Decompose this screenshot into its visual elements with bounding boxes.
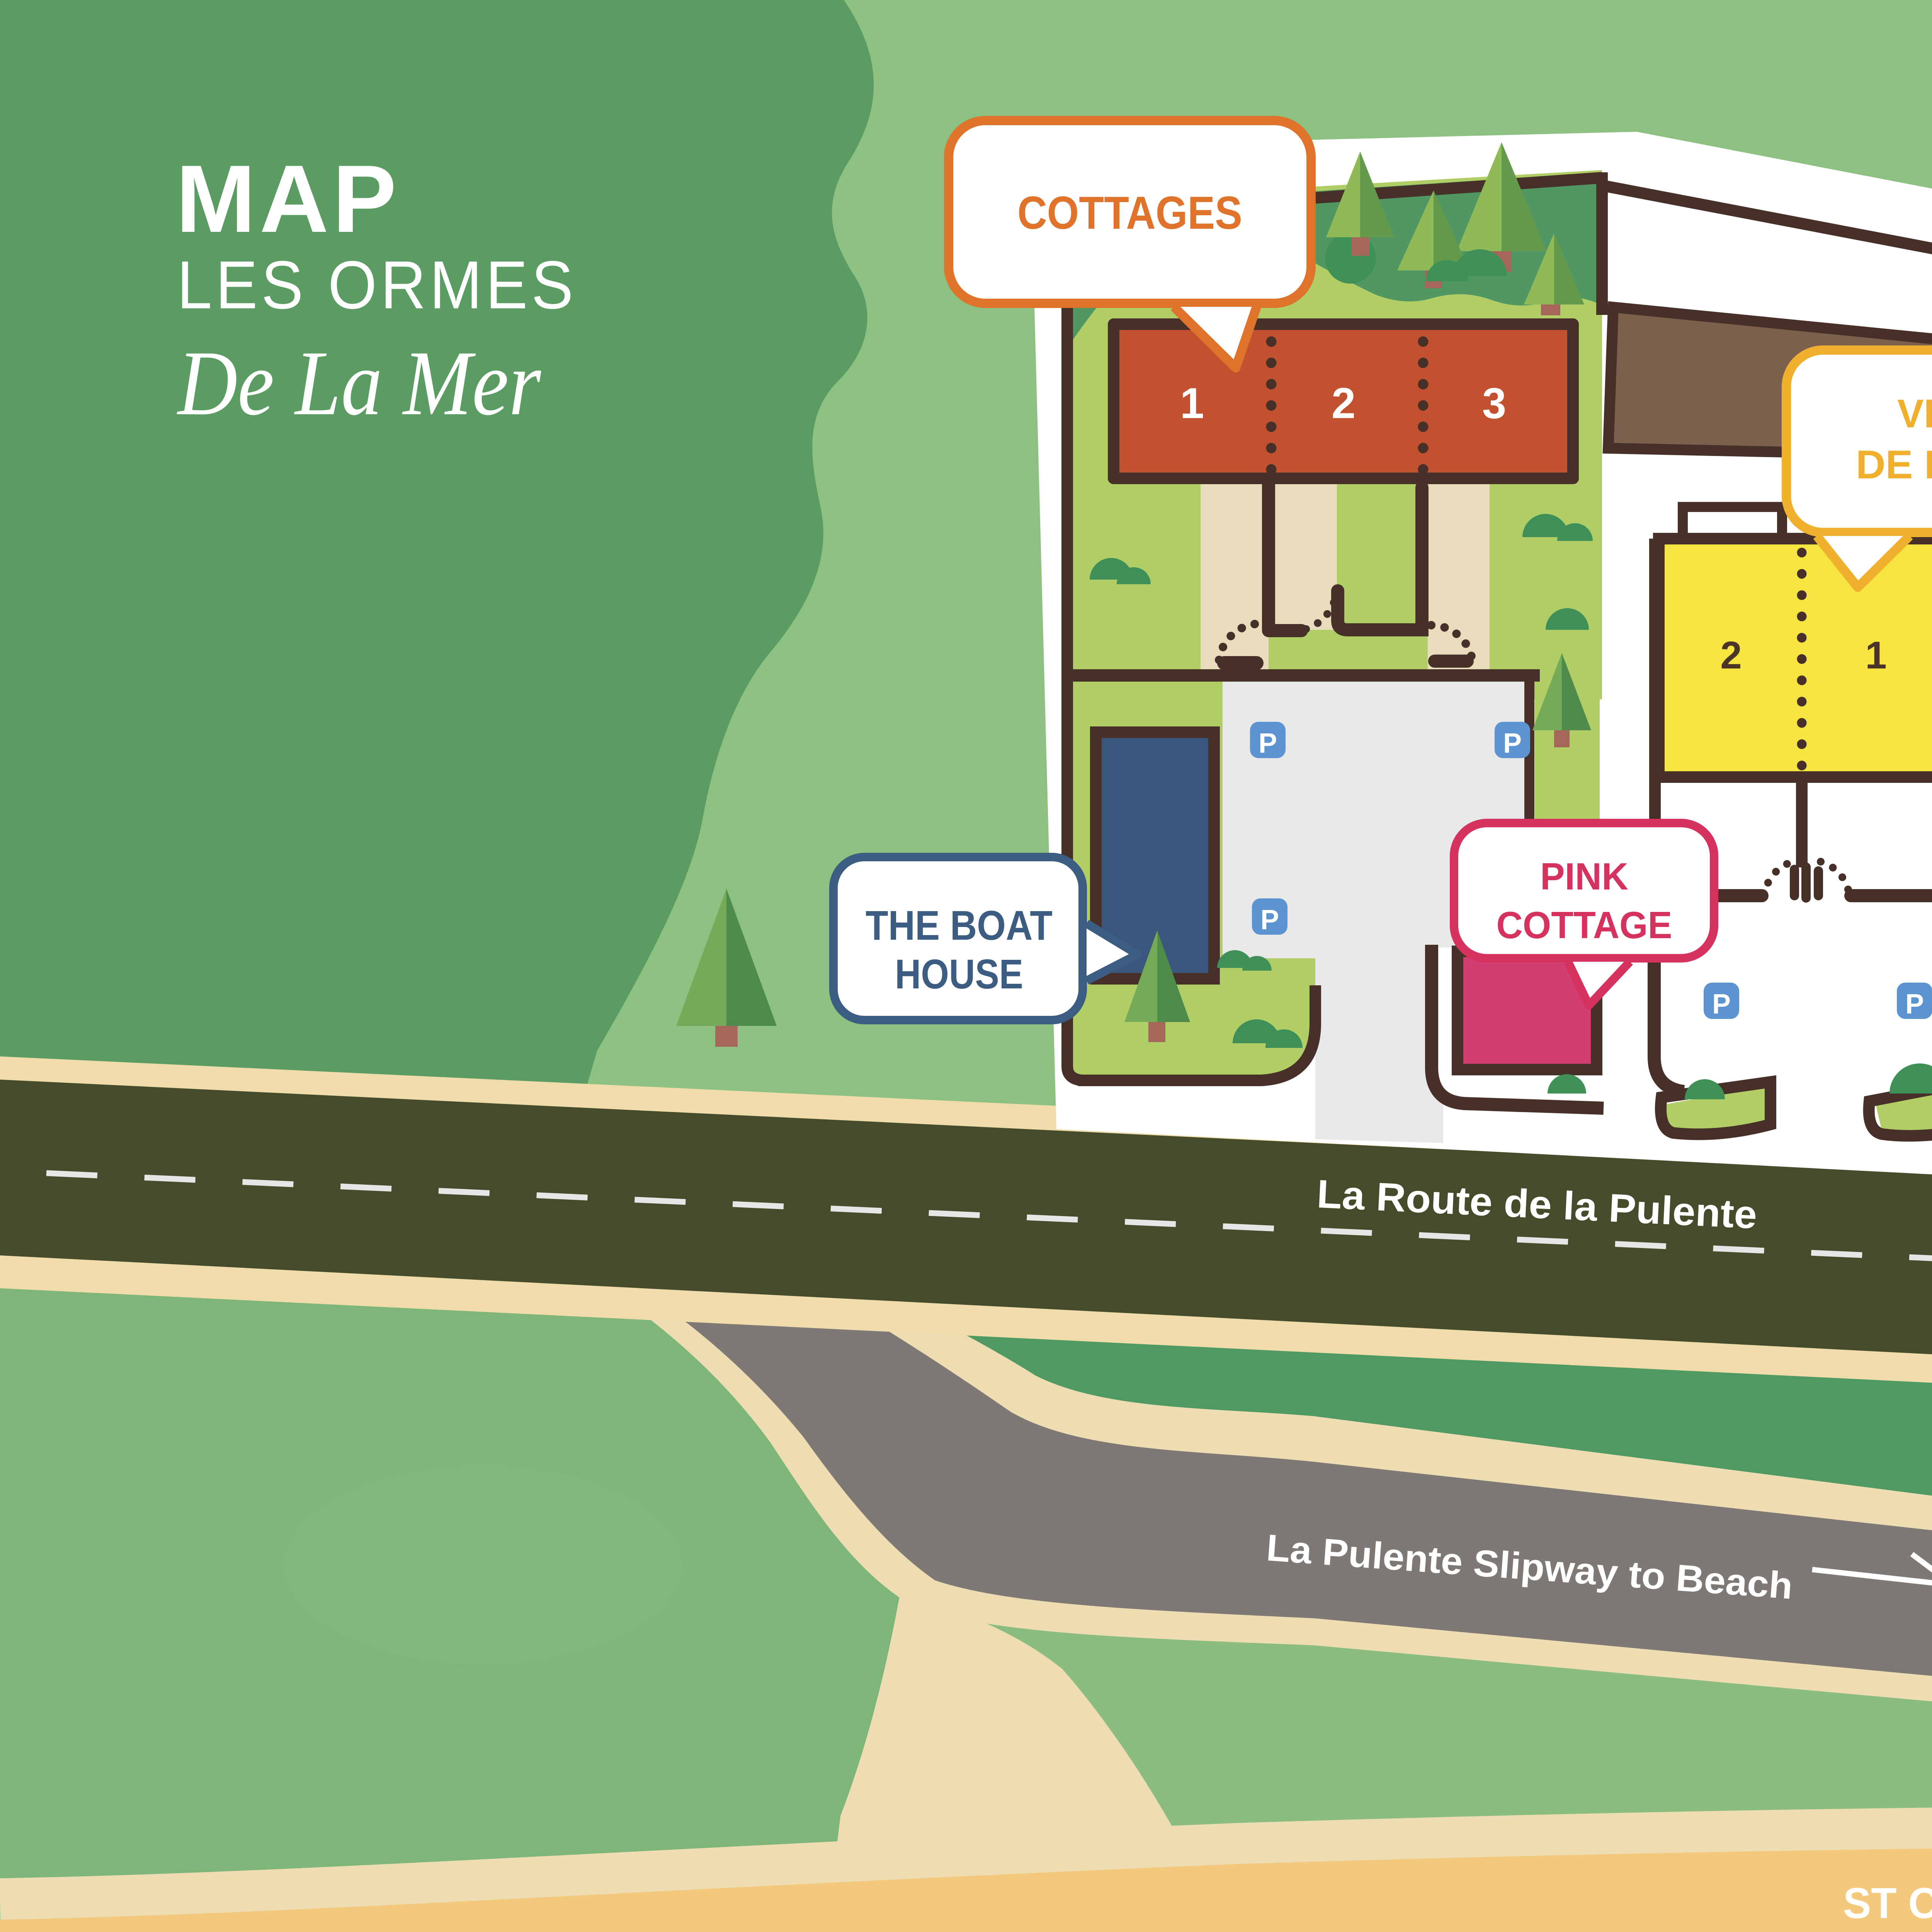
svg-text:2: 2 (1720, 634, 1742, 677)
svg-text:P: P (1503, 728, 1522, 759)
svg-text:COTTAGE: COTTAGE (1497, 904, 1672, 946)
svg-text:LES ORMES: LES ORMES (177, 247, 577, 323)
svg-text:ST OUEN’S BAY: ST OUEN’S BAY (1843, 1879, 1932, 1927)
svg-text:P: P (1905, 989, 1924, 1020)
svg-text:DE LA MER: DE LA MER (1856, 442, 1932, 487)
svg-text:1: 1 (1865, 634, 1887, 677)
svg-text:P: P (1712, 989, 1731, 1020)
svg-text:MAP: MAP (176, 145, 400, 252)
svg-text:2: 2 (1332, 379, 1355, 427)
svg-text:THE BOAT: THE BOAT (866, 902, 1053, 949)
svg-text:3: 3 (1482, 379, 1506, 427)
svg-text:P: P (1260, 905, 1279, 935)
svg-text:1: 1 (1180, 379, 1204, 427)
svg-text:VILLAS: VILLAS (1897, 391, 1932, 436)
svg-text:De La Mer: De La Mer (177, 332, 541, 434)
svg-text:P: P (1259, 728, 1277, 759)
svg-text:COTTAGES: COTTAGES (1017, 187, 1242, 239)
svg-text:HOUSE: HOUSE (895, 951, 1023, 997)
svg-text:PINK: PINK (1540, 855, 1628, 898)
